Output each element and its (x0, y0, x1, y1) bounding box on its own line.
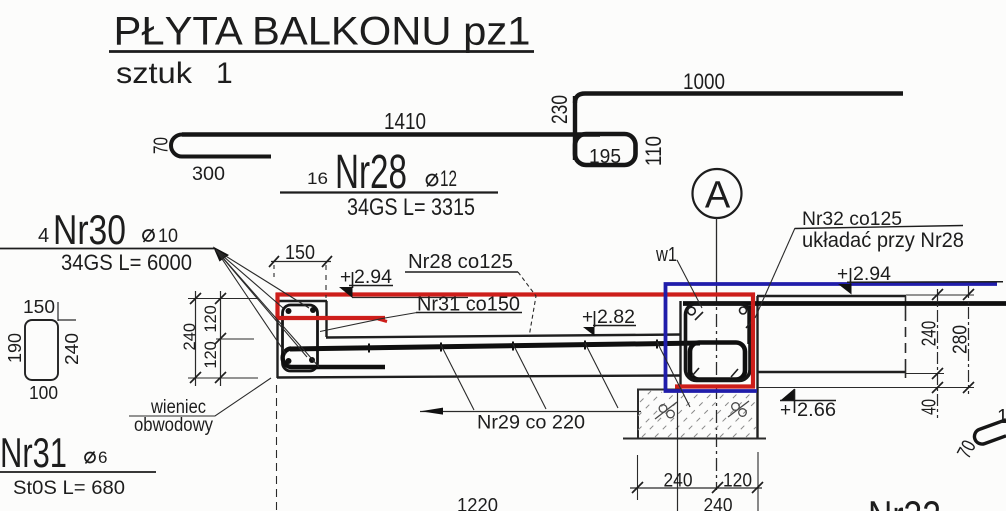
svg-text:1: 1 (216, 57, 233, 90)
svg-text:230: 230 (547, 95, 572, 124)
svg-text:110: 110 (641, 136, 666, 166)
svg-text:240: 240 (180, 323, 199, 351)
svg-text:280: 280 (950, 325, 972, 354)
svg-text:układać przy Nr28: układać przy Nr28 (802, 229, 964, 252)
svg-text:2.66: 2.66 (797, 400, 836, 421)
svg-text:Nr28: Nr28 (335, 146, 407, 199)
svg-text:1: 1 (997, 406, 1006, 428)
svg-text:100: 100 (29, 383, 58, 403)
svg-text:120: 120 (723, 471, 752, 492)
svg-text:40: 40 (919, 399, 941, 415)
svg-text:obwodowy: obwodowy (134, 415, 213, 436)
svg-text:240: 240 (664, 471, 693, 492)
svg-text:34GS L= 3315: 34GS L= 3315 (347, 194, 475, 221)
svg-text:240: 240 (704, 496, 733, 511)
svg-text:sztuk: sztuk (116, 57, 193, 90)
svg-text:Nr29 co 220: Nr29 co 220 (477, 413, 585, 434)
svg-text:16: 16 (307, 170, 328, 188)
svg-text:195: 195 (589, 145, 621, 168)
svg-text:+: + (582, 307, 593, 328)
svg-text:St0S L= 680: St0S L= 680 (13, 477, 125, 499)
svg-text:Nr28 co125: Nr28 co125 (408, 251, 513, 273)
svg-text:1220: 1220 (457, 496, 498, 511)
svg-text:70: 70 (151, 137, 173, 154)
svg-text:Nr31: Nr31 (0, 429, 67, 476)
svg-text:190: 190 (5, 333, 25, 363)
svg-text:150: 150 (23, 297, 55, 317)
svg-text:34GS L= 6000: 34GS L= 6000 (61, 250, 192, 275)
svg-text:w1: w1 (655, 244, 677, 266)
svg-text:150: 150 (285, 242, 315, 264)
svg-text:12: 12 (440, 166, 457, 191)
svg-text:120: 120 (201, 305, 220, 333)
svg-text:240: 240 (919, 321, 941, 347)
svg-text:+: + (837, 264, 848, 285)
svg-text:300: 300 (192, 163, 225, 185)
svg-text:10: 10 (158, 226, 178, 247)
svg-text:4: 4 (38, 225, 49, 247)
svg-text:A: A (705, 175, 731, 217)
svg-text:1000: 1000 (683, 69, 725, 94)
svg-text:PŁYTA BALKONU pz1: PŁYTA BALKONU pz1 (114, 10, 531, 54)
svg-text:Nr30: Nr30 (53, 206, 126, 253)
svg-text:+: + (780, 400, 791, 421)
svg-text:1410: 1410 (384, 108, 426, 134)
svg-text:240: 240 (62, 333, 82, 365)
svg-text:Nr32: Nr32 (868, 492, 941, 511)
svg-text:120: 120 (201, 341, 220, 369)
svg-text:6: 6 (98, 448, 107, 467)
